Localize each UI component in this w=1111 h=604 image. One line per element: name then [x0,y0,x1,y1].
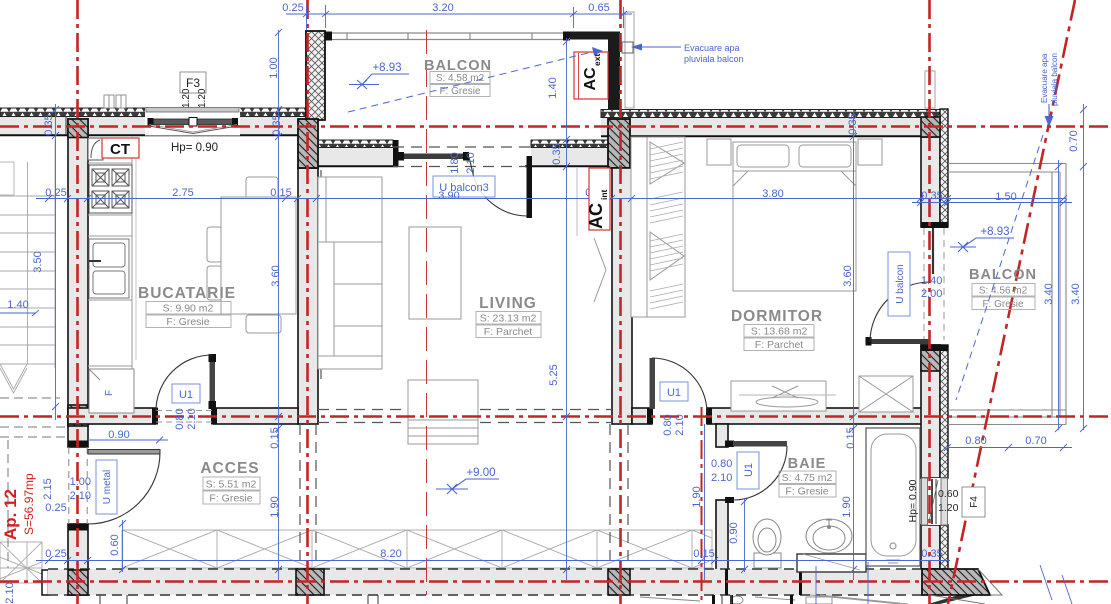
svg-text:F: F [104,390,115,396]
svg-text:5.25: 5.25 [548,364,560,385]
svg-text:3.40: 3.40 [1043,283,1055,304]
svg-text:1.20: 1.20 [197,88,208,108]
svg-text:0.35: 0.35 [551,143,563,164]
svg-text:1.80: 1.80 [449,152,461,173]
svg-text:2.10: 2.10 [186,408,198,429]
svg-text:int: int [599,189,609,200]
svg-text:S=56.97mp: S=56.97mp [22,473,36,535]
svg-text:S: 4.75 m2: S: 4.75 m2 [782,472,833,484]
svg-text:0.70: 0.70 [1025,435,1046,447]
svg-text:pluviala balcon: pluviala balcon [1050,53,1059,106]
svg-text:pluviala balcon: pluviala balcon [684,54,744,64]
svg-text:2.10: 2.10 [711,472,732,484]
svg-text:U metal: U metal [102,470,113,504]
svg-text:U1: U1 [179,389,193,401]
svg-text:F: Gresie: F: Gresie [785,486,828,498]
svg-text:1.50: 1.50 [995,191,1016,203]
svg-text:1.90: 1.90 [691,486,703,507]
svg-text:1.40: 1.40 [7,299,28,311]
svg-text:1.20: 1.20 [938,502,959,514]
svg-text:0.90: 0.90 [108,429,129,441]
svg-text:1.00: 1.00 [268,57,280,78]
svg-text:BUCATARIE: BUCATARIE [138,285,236,302]
svg-text:0.80: 0.80 [965,435,986,447]
svg-text:Ap. 12: Ap. 12 [1,489,20,540]
svg-text:1.20: 1.20 [181,88,192,108]
svg-text:1.40: 1.40 [547,77,559,98]
svg-text:0.25: 0.25 [45,548,66,560]
svg-text:2.15: 2.15 [42,478,54,499]
svg-text:S: 23.13 m2: S: 23.13 m2 [480,313,537,325]
svg-text:0.25: 0.25 [45,502,66,514]
svg-text:3.90: 3.90 [438,190,459,202]
svg-text:+8.93: +8.93 [372,62,401,74]
svg-text:F3: F3 [186,76,200,90]
svg-text:3.60: 3.60 [842,265,854,286]
svg-text:0.35: 0.35 [43,114,55,135]
svg-text:3.60: 3.60 [270,265,282,286]
svg-text:0.80: 0.80 [662,414,674,435]
svg-text:DORMITOR: DORMITOR [731,308,823,325]
svg-text:Evacuare apa: Evacuare apa [684,43,740,53]
svg-text:3.20: 3.20 [432,2,453,14]
svg-text:3.40: 3.40 [1070,283,1082,304]
svg-text:0.15: 0.15 [693,548,714,560]
svg-text:0.90: 0.90 [728,522,740,543]
svg-text:2.75: 2.75 [172,187,193,199]
svg-text:S: 9.90 m2: S: 9.90 m2 [163,303,214,315]
svg-text:F: Gresie: F: Gresie [166,316,209,328]
svg-text:AC: AC [586,203,606,229]
svg-text:0.35: 0.35 [921,548,942,560]
svg-text:Evacuare apa: Evacuare apa [1040,53,1049,103]
svg-text:2.10: 2.10 [70,490,91,502]
svg-text:1.40: 1.40 [921,275,942,287]
svg-text:0.25: 0.25 [45,187,66,199]
svg-text:LIVING: LIVING [479,295,537,312]
svg-text:8.20: 8.20 [380,548,401,560]
svg-text:S: 4.56 m2: S: 4.56 m2 [979,286,1028,297]
svg-text:3.50: 3.50 [32,251,44,272]
svg-text:BAIE: BAIE [788,456,827,472]
svg-text:ACCES: ACCES [200,460,259,477]
svg-text:0.25: 0.25 [282,2,303,14]
svg-text:Hp= 0.90: Hp= 0.90 [171,142,218,154]
svg-text:U1: U1 [667,387,681,399]
svg-text:2.00: 2.00 [921,288,942,300]
svg-text:F: Parchet: F: Parchet [755,339,804,351]
svg-text:0.15: 0.15 [845,427,857,448]
svg-text:CT: CT [110,141,130,158]
svg-text:ext: ext [592,54,602,66]
svg-text:S: 13.68 m2: S: 13.68 m2 [751,326,808,338]
svg-text:2.10: 2.10 [4,582,16,603]
svg-text:0.80: 0.80 [174,408,186,429]
svg-text:1.90: 1.90 [841,496,853,517]
svg-text:0.15: 0.15 [270,187,291,199]
svg-text:0.65: 0.65 [588,2,609,14]
svg-text:U1: U1 [743,463,755,477]
svg-text:F: Gresie: F: Gresie [209,493,252,505]
svg-text:2.10: 2.10 [674,414,686,435]
svg-text:0.70: 0.70 [1068,130,1080,151]
svg-text:+9.00: +9.00 [466,467,495,479]
svg-text:0.60: 0.60 [938,488,959,500]
svg-text:0.60: 0.60 [109,534,121,555]
svg-text:+8.93: +8.93 [980,226,1009,238]
svg-text:2.10: 2.10 [465,152,477,173]
svg-text:0.35: 0.35 [271,114,283,135]
svg-text:F4: F4 [969,496,980,508]
svg-text:0.15: 0.15 [269,427,281,448]
svg-text:U balcon: U balcon [895,264,906,303]
svg-text:1.00: 1.00 [70,476,91,488]
svg-text:AC: AC [582,67,599,91]
svg-text:3.80: 3.80 [762,188,783,200]
svg-text:S: 4,58 m2: S: 4,58 m2 [436,73,485,84]
svg-text:0.80: 0.80 [711,458,732,470]
svg-text:1.90: 1.90 [269,496,281,517]
svg-text:F: Parchet: F: Parchet [484,326,533,338]
svg-text:S: 5.51 m2: S: 5.51 m2 [206,479,257,491]
svg-text:0.35: 0.35 [847,113,859,134]
svg-text:Hp= 0.90: Hp= 0.90 [907,479,919,522]
svg-text:0.35: 0.35 [921,190,942,202]
svg-text:BALCON: BALCON [969,267,1037,283]
